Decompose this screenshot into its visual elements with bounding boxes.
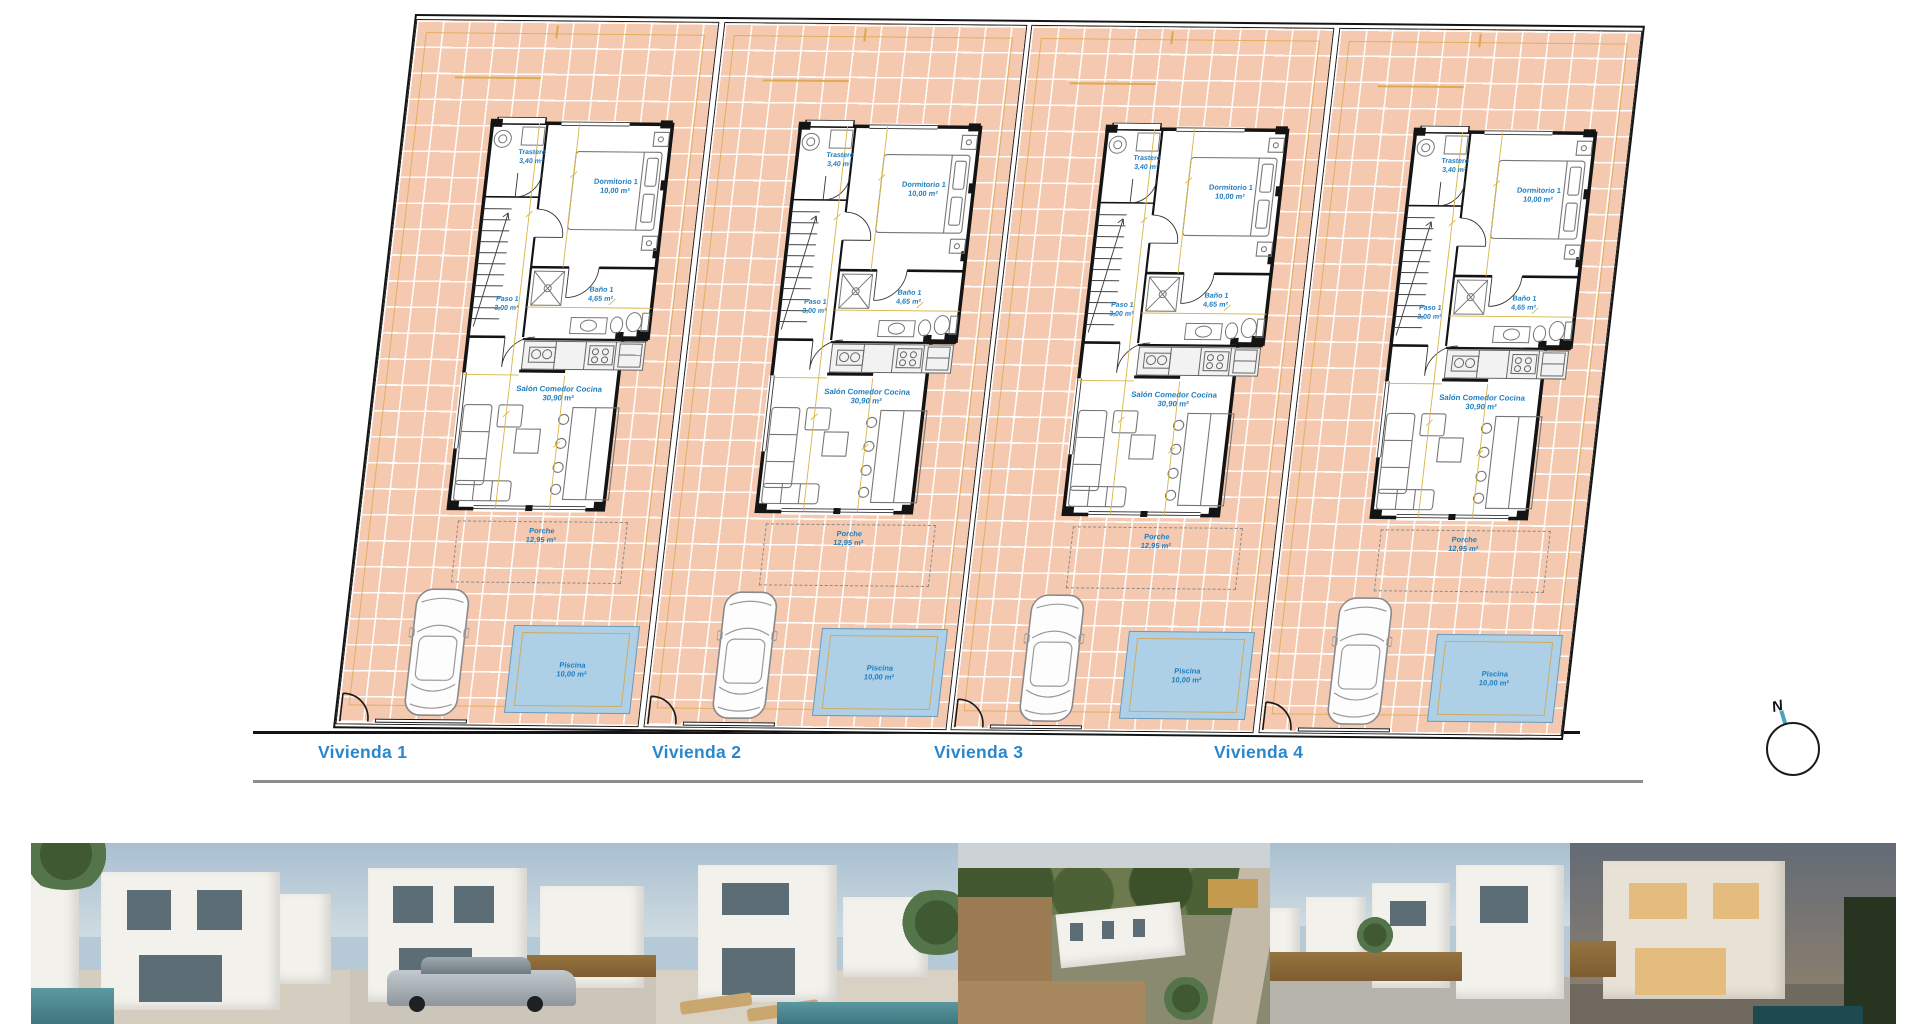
paso-label: Paso 1 bbox=[496, 296, 519, 303]
vehicle-gate bbox=[1297, 728, 1389, 733]
compass-circle-icon bbox=[1766, 722, 1820, 776]
lit-window bbox=[1629, 883, 1688, 919]
vivienda-1-label: Vivienda 1 bbox=[318, 742, 407, 763]
paso-label: Paso 1 bbox=[803, 299, 826, 306]
dormitorio-label: Dormitorio 1 bbox=[1516, 186, 1561, 195]
photo-villa-render-pool-loungers bbox=[656, 843, 958, 1024]
porch-area: Porche 12,95 m² bbox=[758, 523, 935, 587]
photo-villa-render-with-car bbox=[350, 843, 656, 1024]
lit-window bbox=[1713, 883, 1759, 919]
bano-area: 4,65 m² bbox=[1203, 300, 1229, 309]
photo-street-row-of-villas bbox=[1270, 843, 1570, 1024]
paso-area: 3,00 m² bbox=[1109, 311, 1135, 318]
vivienda-4-label: Vivienda 4 bbox=[1214, 742, 1303, 763]
dormitorio-area: 10,00 m² bbox=[1215, 192, 1246, 201]
plan-sheet: Trastero 3,40 m² Dormitorio 1 10,00 m² P… bbox=[0, 0, 1920, 1024]
porch-area: Porche 12,95 m² bbox=[1066, 526, 1243, 590]
dormitorio-area: 10,00 m² bbox=[1522, 195, 1553, 204]
paso-label: Paso 1 bbox=[1418, 305, 1441, 312]
window bbox=[197, 890, 242, 930]
bano-label: Baño 1 bbox=[1512, 294, 1537, 303]
compass: N bbox=[1758, 700, 1842, 784]
window bbox=[722, 948, 794, 995]
window bbox=[1390, 901, 1426, 926]
porch-area-value: 12,95 m² bbox=[1071, 541, 1240, 552]
dormitorio-label: Dormitorio 1 bbox=[1209, 183, 1254, 192]
pool-area-value: 10,00 m² bbox=[556, 669, 587, 679]
trees bbox=[1158, 977, 1214, 1020]
lit-window bbox=[1635, 948, 1726, 995]
paso-area: 3,00 m² bbox=[801, 308, 827, 315]
boundary-line bbox=[253, 780, 1643, 783]
swimming-pool: Piscina 10,00 m² bbox=[1119, 631, 1255, 720]
pedestrian-gate-arc bbox=[1261, 700, 1294, 730]
salon-label: Salón Comedor Cocina bbox=[823, 387, 910, 397]
fence bbox=[1270, 952, 1462, 981]
salon-area: 30,90 m² bbox=[1464, 402, 1497, 411]
porch-label: Porche 12,95 m² bbox=[764, 528, 934, 548]
paso-area: 3,00 m² bbox=[1416, 314, 1442, 321]
porch-label: Porche 12,95 m² bbox=[1071, 531, 1241, 551]
entry-canopy bbox=[1420, 126, 1469, 133]
bano-label: Baño 1 bbox=[589, 285, 614, 294]
paso-area: 3,00 m² bbox=[494, 305, 520, 312]
entry-canopy bbox=[1112, 123, 1161, 130]
vehicle-gate bbox=[682, 722, 774, 727]
photo-villa-render-dusk bbox=[1570, 843, 1896, 1024]
pool-name: Piscina bbox=[864, 663, 895, 673]
salon-area: 30,90 m² bbox=[1157, 399, 1190, 408]
porch-area-value: 12,95 m² bbox=[456, 535, 625, 546]
pool-label: Piscina 10,00 m² bbox=[1171, 666, 1203, 685]
swimming-pool: Piscina 10,00 m² bbox=[504, 625, 640, 714]
entry-canopy bbox=[497, 117, 546, 124]
dormitorio-label: Dormitorio 1 bbox=[594, 177, 639, 186]
pedestrian-gate-arc bbox=[339, 691, 372, 721]
pool-area-value: 10,00 m² bbox=[863, 672, 894, 682]
site-plan: Trastero 3,40 m² Dormitorio 1 10,00 m² P… bbox=[333, 14, 1645, 740]
pool-name: Piscina bbox=[1479, 669, 1510, 679]
palm-tree bbox=[1354, 915, 1396, 955]
porch-area: Porche 12,95 m² bbox=[451, 520, 628, 584]
window bbox=[1070, 923, 1082, 941]
window bbox=[1133, 919, 1145, 937]
ochre-building bbox=[1208, 879, 1258, 908]
vehicle-gate bbox=[990, 725, 1082, 730]
trastero-label: Trastero bbox=[518, 149, 546, 156]
car bbox=[387, 970, 577, 1006]
bano-area: 4,65 m² bbox=[588, 294, 614, 303]
bano-label: Baño 1 bbox=[897, 288, 922, 297]
window bbox=[1480, 886, 1528, 922]
kitchen-counter bbox=[1444, 350, 1568, 379]
pool bbox=[777, 1002, 958, 1024]
vivienda-3-label: Vivienda 3 bbox=[934, 742, 1023, 763]
salon-area: 30,90 m² bbox=[849, 396, 882, 405]
pool-label: Piscina 10,00 m² bbox=[1478, 669, 1510, 688]
trastero-area: 3,40 m² bbox=[1441, 167, 1467, 174]
salon-area: 30,90 m² bbox=[542, 393, 575, 402]
pool-name: Piscina bbox=[557, 660, 588, 670]
salon-label: Salón Comedor Cocina bbox=[1438, 393, 1525, 403]
fence bbox=[1570, 941, 1616, 977]
dormitorio-label: Dormitorio 1 bbox=[901, 180, 946, 189]
trastero-label: Trastero bbox=[1133, 155, 1161, 162]
villa bbox=[1456, 865, 1564, 999]
horizon bbox=[958, 843, 1270, 868]
porch-label: Porche 12,95 m² bbox=[456, 525, 626, 545]
window bbox=[139, 955, 222, 1002]
wheel bbox=[527, 996, 543, 1012]
window bbox=[127, 890, 172, 930]
pedestrian-gate-arc bbox=[954, 697, 987, 727]
pool-label: Piscina 10,00 m² bbox=[556, 660, 588, 679]
porch-area-value: 12,95 m² bbox=[764, 538, 933, 549]
north-label: N bbox=[1770, 697, 1785, 716]
pedestrian-gate-arc bbox=[646, 694, 679, 724]
swimming-pool: Piscina 10,00 m² bbox=[811, 628, 947, 717]
window bbox=[454, 886, 494, 922]
building bbox=[280, 894, 331, 985]
porch-area: Porche 12,95 m² bbox=[1373, 529, 1550, 593]
kitchen-counter bbox=[829, 344, 953, 373]
pool-name: Piscina bbox=[1172, 666, 1203, 676]
pool-label: Piscina 10,00 m² bbox=[863, 663, 895, 682]
salon-label: Salón Comedor Cocina bbox=[1131, 390, 1218, 400]
bano-area: 4,65 m² bbox=[1510, 303, 1536, 312]
pool bbox=[1753, 1006, 1864, 1024]
bano-label: Baño 1 bbox=[1204, 291, 1229, 300]
window bbox=[722, 883, 788, 916]
swimming-pool: Piscina 10,00 m² bbox=[1426, 634, 1562, 723]
paso-label: Paso 1 bbox=[1111, 302, 1134, 309]
entry-canopy bbox=[805, 120, 854, 127]
porch-label: Porche 12,95 m² bbox=[1379, 534, 1549, 554]
pool bbox=[31, 988, 114, 1024]
kitchen-counter bbox=[1136, 347, 1260, 376]
trastero-label: Trastero bbox=[826, 152, 854, 159]
dirt-field bbox=[958, 981, 1145, 1024]
trastero-area: 3,40 m² bbox=[519, 158, 545, 165]
window bbox=[393, 886, 433, 922]
trastero-area: 3,40 m² bbox=[1134, 164, 1160, 171]
vivienda-2-label: Vivienda 2 bbox=[652, 742, 741, 763]
window bbox=[1102, 921, 1114, 939]
trastero-label: Trastero bbox=[1441, 158, 1469, 165]
kitchen-counter bbox=[521, 341, 645, 370]
dormitorio-area: 10,00 m² bbox=[907, 189, 938, 198]
car-cabin bbox=[421, 957, 531, 974]
trastero-area: 3,40 m² bbox=[826, 161, 852, 168]
salon-label: Salón Comedor Cocina bbox=[516, 384, 603, 394]
porch-area-value: 12,95 m² bbox=[1379, 544, 1548, 555]
pool-area-value: 10,00 m² bbox=[1478, 678, 1509, 688]
photo-villa-render-front bbox=[31, 843, 350, 1024]
dormitorio-area: 10,00 m² bbox=[600, 186, 631, 195]
pool-area-value: 10,00 m² bbox=[1171, 675, 1202, 685]
photo-aerial-construction-site bbox=[958, 843, 1270, 1024]
bano-area: 4,65 m² bbox=[895, 297, 921, 306]
